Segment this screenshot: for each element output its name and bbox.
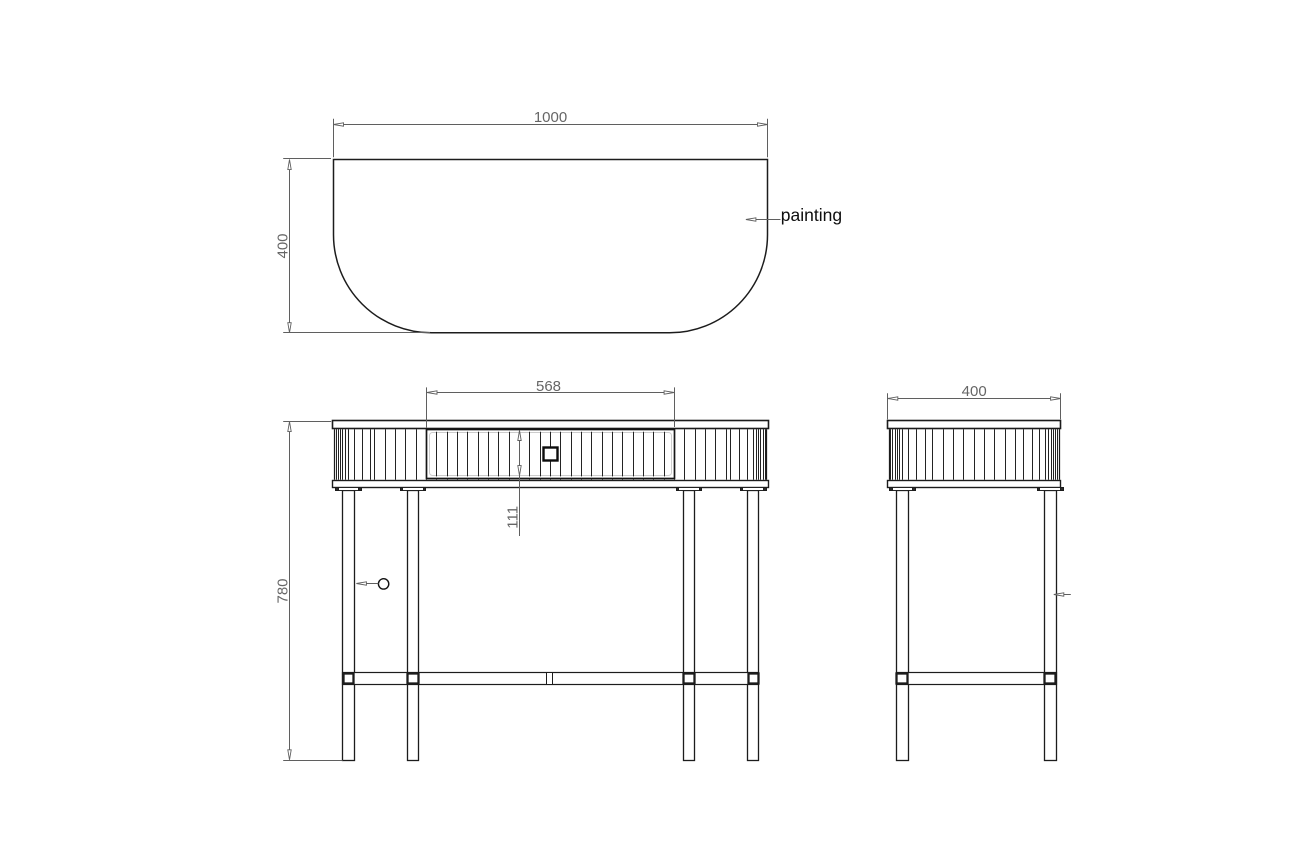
- svg-text:1000: 1000: [534, 109, 567, 126]
- svg-text:111: 111: [505, 506, 522, 529]
- svg-text:568: 568: [536, 378, 561, 395]
- svg-text:400: 400: [274, 233, 291, 258]
- svg-text:painting: painting: [781, 205, 842, 225]
- svg-text:780: 780: [274, 578, 291, 603]
- svg-text:400: 400: [962, 383, 987, 400]
